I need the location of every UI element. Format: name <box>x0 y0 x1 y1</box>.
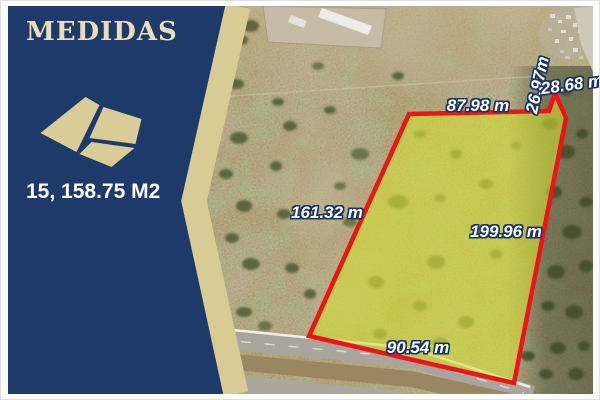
land-measurement-flyer: MEDIDAS 15, 158.75 M2 87.98 m 26.97m 28.… <box>0 0 600 400</box>
measurement-top: 87.98 m <box>447 96 509 116</box>
measurement-labels: 87.98 m 26.97m 28.68 m 161.32 m 199.96 m… <box>8 6 593 394</box>
measurement-bottom: 90.54 m <box>387 338 449 358</box>
measurement-left: 161.32 m <box>291 203 363 223</box>
measurement-right: 199.96 m <box>470 222 542 242</box>
flyer-content: MEDIDAS 15, 158.75 M2 87.98 m 26.97m 28.… <box>8 6 593 394</box>
